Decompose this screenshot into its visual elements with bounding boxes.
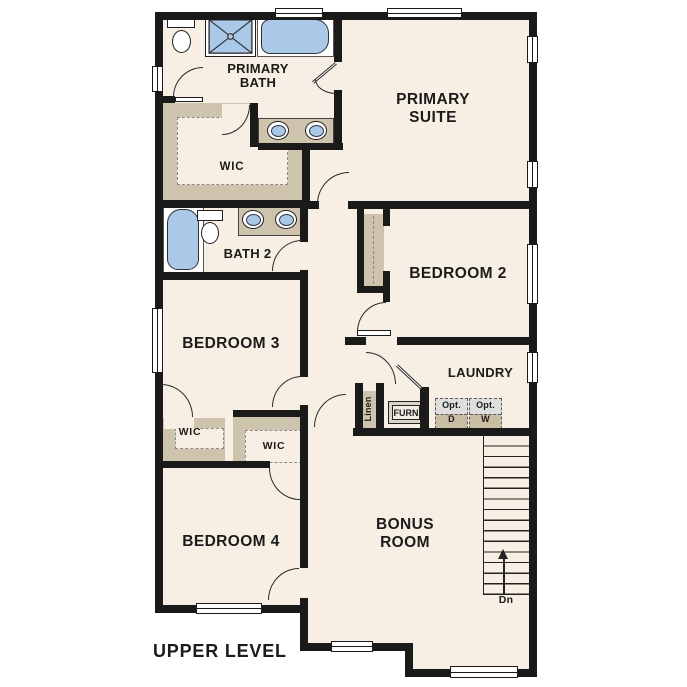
closet-label-bedroom4-wic: WIC	[246, 441, 302, 453]
vanity-sink	[242, 210, 264, 229]
wall	[258, 143, 343, 150]
toilet-tank	[197, 210, 223, 221]
window	[527, 36, 538, 63]
optional-dryer-letter: D	[436, 414, 467, 428]
wall	[155, 96, 175, 103]
optional-dryer-prefix: Opt.	[436, 401, 467, 411]
door-leaf-bedroom2	[357, 330, 391, 336]
wall	[334, 90, 342, 147]
wall	[300, 208, 308, 242]
room-label-laundry: LAUNDRY	[423, 366, 538, 380]
wall	[348, 201, 537, 209]
bedroom2-closet-shelf	[364, 214, 384, 286]
vanity-sink	[305, 121, 327, 140]
wall	[300, 598, 308, 613]
optional-dryer: Opt. D	[435, 398, 468, 429]
staircase	[483, 436, 529, 595]
vanity-sink	[267, 121, 289, 140]
window	[527, 161, 538, 188]
wall	[250, 103, 258, 147]
closet-label-primary-wic: WIC	[202, 161, 262, 174]
shower	[205, 16, 256, 57]
room-label-bonus-room: BONUS ROOM	[355, 516, 455, 552]
optional-washer: Opt. W	[469, 398, 502, 429]
wall	[302, 147, 310, 209]
bedroom2-closet-rod	[373, 216, 374, 284]
wall	[233, 410, 308, 417]
wall	[376, 383, 384, 431]
bath-floor-strip	[258, 103, 334, 118]
room-label-bath2: BATH 2	[200, 247, 295, 261]
level-title: UPPER LEVEL	[153, 642, 393, 662]
tub-primary	[261, 19, 329, 54]
closet-label-linen: Linen	[364, 388, 374, 430]
window	[196, 603, 262, 614]
furnace-unit: FURN	[388, 401, 424, 424]
closet-label-bedroom3-wic: WIC	[162, 427, 218, 439]
tub-bath2	[167, 209, 199, 270]
wall	[155, 461, 270, 468]
optional-washer-prefix: Opt.	[470, 401, 501, 411]
wall	[155, 272, 308, 280]
window	[387, 8, 462, 18]
wall	[334, 12, 342, 62]
stair-direction-arrow-icon	[503, 558, 505, 594]
wall	[420, 387, 429, 430]
window	[275, 8, 323, 18]
vanity-sink	[275, 210, 297, 229]
wall	[383, 208, 390, 226]
stairs-down-label: Dn	[486, 595, 526, 607]
wall	[397, 337, 537, 345]
window	[450, 666, 518, 678]
floor-plan: FURN Opt. D Opt. W	[0, 0, 687, 687]
room-label-primary-bath: PRIMARY BATH	[213, 62, 303, 91]
toilet-bowl	[201, 222, 219, 244]
wall	[345, 337, 366, 345]
window	[152, 66, 163, 92]
wall	[355, 383, 363, 431]
room-label-primary-suite: PRIMARY SUITE	[373, 91, 493, 127]
furnace-label: FURN	[392, 405, 420, 420]
room-label-bedroom4: BEDROOM 4	[156, 533, 306, 551]
toilet-bowl	[172, 30, 191, 53]
door-threshold	[175, 97, 203, 102]
wall	[155, 200, 310, 208]
wall	[300, 270, 308, 377]
optional-washer-letter: W	[470, 414, 501, 428]
wall	[155, 12, 537, 20]
room-label-bedroom3: BEDROOM 3	[156, 335, 306, 353]
stair-arrow-head-icon	[498, 549, 508, 559]
room-label-bedroom2: BEDROOM 2	[383, 265, 533, 283]
wall	[357, 208, 364, 293]
